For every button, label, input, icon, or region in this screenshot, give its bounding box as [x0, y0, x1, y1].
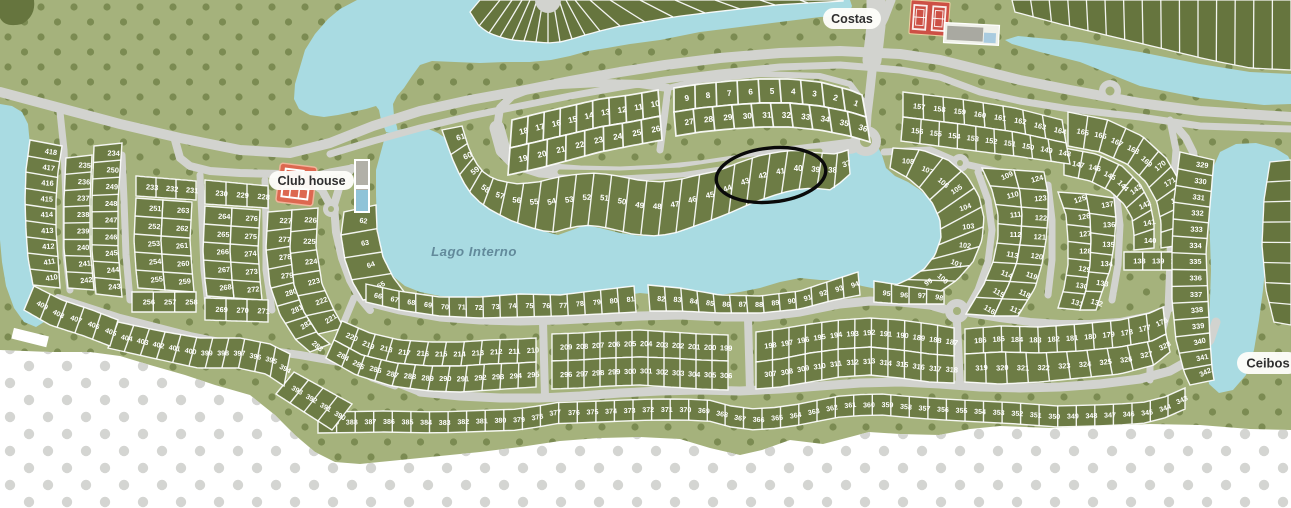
svg-text:228: 228: [257, 192, 270, 202]
svg-text:111: 111: [1009, 209, 1022, 219]
svg-text:213: 213: [471, 348, 484, 358]
svg-text:74: 74: [508, 301, 517, 311]
svg-text:192: 192: [863, 328, 876, 338]
svg-text:349: 349: [1067, 412, 1079, 420]
svg-text:290: 290: [439, 374, 451, 383]
svg-text:345: 345: [1141, 408, 1154, 417]
svg-text:381: 381: [476, 417, 488, 425]
svg-text:258: 258: [185, 298, 197, 307]
svg-text:214: 214: [453, 350, 466, 359]
svg-text:320: 320: [996, 363, 1009, 373]
svg-text:55: 55: [529, 197, 539, 207]
svg-text:235: 235: [78, 160, 91, 170]
svg-text:84: 84: [689, 296, 698, 306]
svg-text:208: 208: [576, 342, 589, 351]
svg-text:122: 122: [1035, 213, 1048, 222]
svg-text:361: 361: [844, 401, 857, 410]
svg-text:83: 83: [673, 295, 682, 305]
svg-text:310: 310: [813, 361, 826, 372]
svg-text:234: 234: [107, 149, 121, 158]
svg-text:251: 251: [149, 204, 162, 214]
svg-text:415: 415: [40, 194, 53, 203]
svg-text:319: 319: [975, 363, 988, 373]
svg-text:297: 297: [576, 369, 589, 378]
svg-text:350: 350: [1048, 413, 1060, 422]
svg-text:152: 152: [985, 136, 998, 147]
svg-text:79: 79: [592, 297, 601, 307]
svg-text:62: 62: [359, 216, 368, 226]
svg-text:257: 257: [164, 298, 176, 307]
svg-text:155: 155: [929, 128, 942, 138]
svg-text:397: 397: [233, 350, 245, 358]
svg-text:412: 412: [42, 241, 55, 251]
svg-text:358: 358: [900, 403, 913, 412]
svg-text:296: 296: [560, 370, 573, 379]
svg-text:303: 303: [672, 368, 685, 378]
svg-text:63: 63: [360, 238, 369, 248]
svg-text:329: 329: [1196, 160, 1209, 170]
svg-text:211: 211: [508, 347, 520, 356]
svg-text:266: 266: [216, 247, 229, 257]
svg-text:298: 298: [592, 368, 605, 378]
svg-text:233: 233: [146, 182, 159, 192]
svg-text:68: 68: [407, 297, 416, 307]
svg-text:Ceibos: Ceibos: [1246, 356, 1289, 371]
svg-text:300: 300: [624, 367, 637, 376]
svg-text:217: 217: [398, 347, 411, 357]
svg-text:244: 244: [106, 265, 120, 275]
svg-text:357: 357: [918, 404, 930, 413]
svg-text:216: 216: [416, 349, 429, 359]
svg-text:34: 34: [820, 114, 831, 124]
svg-text:Lago Interno: Lago Interno: [431, 244, 517, 259]
svg-text:27: 27: [684, 117, 695, 127]
svg-text:254: 254: [149, 257, 163, 267]
svg-text:81: 81: [626, 294, 635, 304]
svg-text:159: 159: [953, 106, 966, 116]
svg-text:398: 398: [217, 350, 229, 358]
svg-text:227: 227: [279, 216, 292, 226]
svg-text:199: 199: [720, 343, 733, 352]
svg-text:288: 288: [403, 371, 416, 381]
svg-text:311: 311: [829, 358, 842, 369]
svg-text:250: 250: [106, 165, 119, 174]
svg-text:86: 86: [722, 300, 731, 310]
svg-text:161: 161: [993, 112, 1007, 123]
svg-text:333: 333: [1190, 225, 1203, 234]
svg-text:387: 387: [364, 418, 376, 426]
svg-text:317: 317: [929, 364, 942, 374]
svg-text:351: 351: [1030, 411, 1043, 420]
svg-text:184: 184: [1011, 335, 1024, 344]
svg-text:238: 238: [77, 210, 89, 219]
svg-text:272: 272: [247, 284, 260, 294]
svg-text:277: 277: [278, 235, 291, 245]
svg-text:226: 226: [304, 215, 317, 225]
svg-text:225: 225: [303, 237, 316, 247]
svg-text:291: 291: [457, 374, 469, 383]
svg-text:89: 89: [771, 298, 780, 308]
svg-text:339: 339: [1192, 321, 1205, 331]
svg-text:305: 305: [704, 370, 717, 379]
svg-text:215: 215: [435, 350, 447, 359]
svg-text:237: 237: [77, 194, 90, 203]
svg-text:40: 40: [794, 164, 803, 173]
svg-text:301: 301: [640, 367, 652, 376]
svg-text:154: 154: [948, 131, 962, 142]
svg-text:200: 200: [704, 343, 717, 352]
svg-text:294: 294: [509, 371, 523, 380]
svg-text:205: 205: [624, 339, 637, 348]
svg-text:203: 203: [656, 340, 669, 350]
svg-text:198: 198: [764, 340, 777, 350]
svg-text:12: 12: [617, 105, 628, 115]
svg-text:417: 417: [42, 162, 55, 173]
svg-text:138: 138: [1133, 257, 1145, 266]
svg-text:181: 181: [1066, 333, 1079, 343]
svg-text:264: 264: [218, 212, 232, 222]
svg-text:103: 103: [962, 221, 975, 231]
svg-text:388: 388: [346, 418, 358, 426]
svg-text:187: 187: [945, 337, 959, 348]
svg-text:207: 207: [592, 340, 605, 350]
svg-text:252: 252: [148, 222, 161, 232]
svg-text:369: 369: [698, 407, 711, 416]
svg-text:245: 245: [105, 248, 118, 258]
svg-text:324: 324: [1079, 359, 1093, 369]
svg-text:384: 384: [420, 419, 432, 427]
svg-text:160: 160: [973, 109, 987, 120]
svg-text:268: 268: [219, 282, 232, 292]
svg-text:354: 354: [974, 408, 986, 417]
svg-text:87: 87: [739, 300, 747, 309]
svg-text:178: 178: [1120, 327, 1134, 338]
svg-text:Club house: Club house: [277, 174, 345, 188]
svg-text:292: 292: [474, 373, 487, 383]
svg-text:355: 355: [955, 407, 967, 416]
svg-text:121: 121: [1033, 232, 1046, 242]
svg-text:112: 112: [1010, 230, 1022, 239]
svg-text:229: 229: [236, 190, 249, 200]
svg-text:313: 313: [863, 356, 876, 366]
svg-text:373: 373: [624, 407, 636, 415]
svg-text:273: 273: [245, 267, 258, 277]
svg-text:265: 265: [217, 230, 230, 240]
svg-text:242: 242: [80, 275, 93, 285]
svg-text:353: 353: [993, 409, 1005, 418]
svg-text:253: 253: [147, 239, 160, 249]
svg-text:139: 139: [1152, 257, 1164, 266]
svg-text:97: 97: [917, 291, 926, 301]
svg-text:190: 190: [896, 330, 909, 340]
svg-text:72: 72: [475, 303, 483, 312]
svg-text:69: 69: [423, 300, 432, 310]
svg-text:306: 306: [720, 371, 733, 380]
svg-text:386: 386: [383, 418, 395, 426]
svg-text:206: 206: [608, 340, 621, 350]
svg-text:262: 262: [176, 224, 189, 234]
svg-text:32: 32: [782, 111, 792, 120]
svg-text:136: 136: [1103, 220, 1116, 229]
svg-text:82: 82: [657, 294, 666, 304]
svg-text:380: 380: [494, 416, 506, 424]
svg-text:336: 336: [1190, 274, 1202, 283]
svg-text:230: 230: [215, 188, 228, 198]
svg-text:385: 385: [402, 418, 414, 426]
svg-text:236: 236: [78, 177, 91, 187]
svg-text:195: 195: [813, 332, 826, 343]
svg-text:243: 243: [108, 282, 121, 292]
svg-text:88: 88: [755, 300, 763, 309]
svg-text:347: 347: [1104, 411, 1116, 419]
svg-text:158: 158: [933, 104, 946, 114]
svg-text:232: 232: [166, 184, 179, 194]
svg-text:267: 267: [217, 265, 230, 275]
svg-text:331: 331: [1192, 192, 1205, 202]
svg-text:70: 70: [441, 302, 450, 312]
svg-text:374: 374: [605, 407, 617, 415]
svg-text:325: 325: [1099, 357, 1112, 367]
svg-text:224: 224: [305, 256, 319, 266]
svg-text:201: 201: [688, 342, 701, 352]
svg-text:75: 75: [525, 301, 533, 310]
svg-text:275: 275: [244, 232, 257, 242]
svg-text:293: 293: [492, 372, 505, 381]
svg-text:48: 48: [653, 202, 663, 211]
svg-text:335: 335: [1189, 257, 1201, 266]
svg-text:359: 359: [881, 401, 893, 409]
svg-text:73: 73: [491, 302, 500, 312]
svg-text:191: 191: [879, 329, 892, 339]
svg-text:5: 5: [770, 87, 775, 96]
svg-text:241: 241: [78, 259, 91, 269]
svg-text:371: 371: [661, 406, 673, 414]
svg-text:33: 33: [801, 112, 811, 122]
svg-text:123: 123: [1034, 193, 1047, 203]
svg-text:259: 259: [178, 276, 191, 286]
svg-text:85: 85: [705, 298, 714, 308]
svg-text:77: 77: [559, 301, 567, 310]
svg-text:31: 31: [762, 111, 772, 120]
svg-text:375: 375: [586, 408, 598, 416]
svg-text:209: 209: [560, 342, 573, 351]
svg-text:153: 153: [966, 133, 979, 144]
svg-text:246: 246: [105, 232, 117, 241]
svg-text:183: 183: [1029, 335, 1041, 344]
svg-text:326: 326: [1120, 354, 1133, 364]
svg-text:204: 204: [640, 339, 653, 348]
svg-text:271: 271: [257, 306, 270, 315]
svg-text:330: 330: [1194, 176, 1207, 186]
svg-text:135: 135: [1102, 240, 1115, 249]
svg-text:189: 189: [912, 332, 925, 343]
svg-text:346: 346: [1123, 410, 1135, 419]
svg-text:255: 255: [150, 274, 163, 284]
svg-text:196: 196: [796, 335, 810, 346]
svg-text:51: 51: [600, 193, 610, 203]
svg-text:314: 314: [879, 358, 893, 368]
svg-text:270: 270: [236, 306, 249, 315]
svg-text:156: 156: [911, 126, 924, 136]
svg-text:322: 322: [1037, 363, 1049, 372]
svg-text:76: 76: [542, 301, 550, 310]
svg-text:260: 260: [177, 259, 190, 269]
svg-text:318: 318: [945, 365, 958, 375]
svg-text:418: 418: [44, 147, 57, 158]
svg-text:312: 312: [846, 357, 859, 367]
svg-text:210: 210: [526, 345, 539, 355]
svg-text:102: 102: [959, 240, 972, 250]
svg-text:279: 279: [281, 270, 294, 280]
svg-text:120: 120: [1030, 251, 1044, 262]
svg-text:95: 95: [882, 288, 891, 298]
svg-text:193: 193: [846, 329, 859, 339]
svg-text:307: 307: [764, 369, 777, 379]
svg-text:338: 338: [1190, 305, 1203, 315]
svg-text:90: 90: [787, 296, 796, 306]
svg-text:302: 302: [656, 367, 669, 376]
svg-text:321: 321: [1017, 363, 1029, 372]
svg-text:352: 352: [1011, 410, 1023, 419]
svg-text:24: 24: [613, 131, 624, 141]
svg-text:372: 372: [642, 406, 654, 414]
svg-text:413: 413: [41, 226, 54, 236]
svg-text:182: 182: [1047, 334, 1060, 344]
svg-text:366: 366: [753, 416, 765, 424]
svg-text:274: 274: [244, 249, 258, 259]
svg-text:231: 231: [186, 185, 199, 195]
svg-text:276: 276: [245, 214, 258, 224]
svg-text:399: 399: [201, 349, 213, 357]
svg-text:29: 29: [723, 113, 733, 123]
svg-text:28: 28: [703, 115, 713, 125]
svg-text:304: 304: [688, 369, 702, 379]
svg-text:52: 52: [582, 193, 592, 202]
svg-text:185: 185: [992, 334, 1005, 344]
svg-text:383: 383: [439, 419, 451, 427]
svg-text:194: 194: [829, 330, 843, 341]
svg-text:315: 315: [896, 359, 909, 369]
svg-text:56: 56: [512, 195, 522, 205]
svg-text:376: 376: [568, 409, 580, 417]
svg-text:377: 377: [549, 408, 562, 418]
svg-text:Costas: Costas: [831, 12, 873, 26]
svg-text:157: 157: [913, 101, 926, 111]
svg-text:108: 108: [902, 156, 915, 166]
svg-text:240: 240: [77, 243, 90, 252]
svg-text:30: 30: [743, 111, 753, 121]
svg-text:416: 416: [41, 178, 54, 187]
svg-text:202: 202: [672, 341, 685, 351]
svg-text:289: 289: [421, 373, 434, 383]
svg-text:127: 127: [1079, 229, 1092, 239]
svg-text:356: 356: [937, 406, 949, 415]
svg-text:247: 247: [105, 216, 117, 225]
svg-text:256: 256: [143, 298, 155, 307]
svg-text:299: 299: [608, 367, 621, 377]
svg-text:188: 188: [929, 335, 942, 346]
svg-text:197: 197: [780, 338, 794, 349]
svg-text:261: 261: [176, 241, 189, 251]
svg-text:80: 80: [609, 296, 618, 306]
svg-text:39: 39: [811, 164, 821, 174]
svg-text:263: 263: [177, 206, 190, 216]
svg-text:96: 96: [900, 290, 909, 300]
svg-text:323: 323: [1058, 361, 1071, 371]
svg-text:295: 295: [527, 370, 540, 380]
svg-text:370: 370: [679, 406, 691, 414]
svg-text:278: 278: [279, 252, 292, 262]
svg-text:348: 348: [1085, 412, 1097, 420]
svg-text:334: 334: [1189, 241, 1203, 250]
svg-text:365: 365: [771, 414, 784, 423]
svg-text:151: 151: [1003, 138, 1016, 149]
svg-text:316: 316: [912, 361, 925, 372]
svg-text:332: 332: [1191, 208, 1204, 217]
svg-text:134: 134: [1100, 259, 1114, 268]
svg-text:360: 360: [863, 401, 875, 409]
svg-text:249: 249: [106, 182, 119, 191]
svg-text:133: 133: [1096, 278, 1110, 289]
svg-text:379: 379: [513, 416, 525, 425]
svg-text:180: 180: [1084, 331, 1097, 341]
svg-text:179: 179: [1102, 330, 1115, 340]
svg-text:38: 38: [828, 166, 838, 175]
svg-text:140: 140: [1144, 236, 1156, 245]
svg-text:248: 248: [105, 199, 117, 208]
svg-text:71: 71: [458, 303, 466, 312]
svg-text:382: 382: [457, 418, 469, 426]
svg-text:269: 269: [215, 305, 228, 314]
svg-text:186: 186: [974, 335, 987, 345]
svg-text:78: 78: [575, 299, 584, 309]
svg-text:212: 212: [490, 347, 503, 357]
svg-text:414: 414: [41, 210, 55, 219]
svg-text:239: 239: [77, 227, 89, 236]
svg-text:337: 337: [1190, 290, 1202, 299]
